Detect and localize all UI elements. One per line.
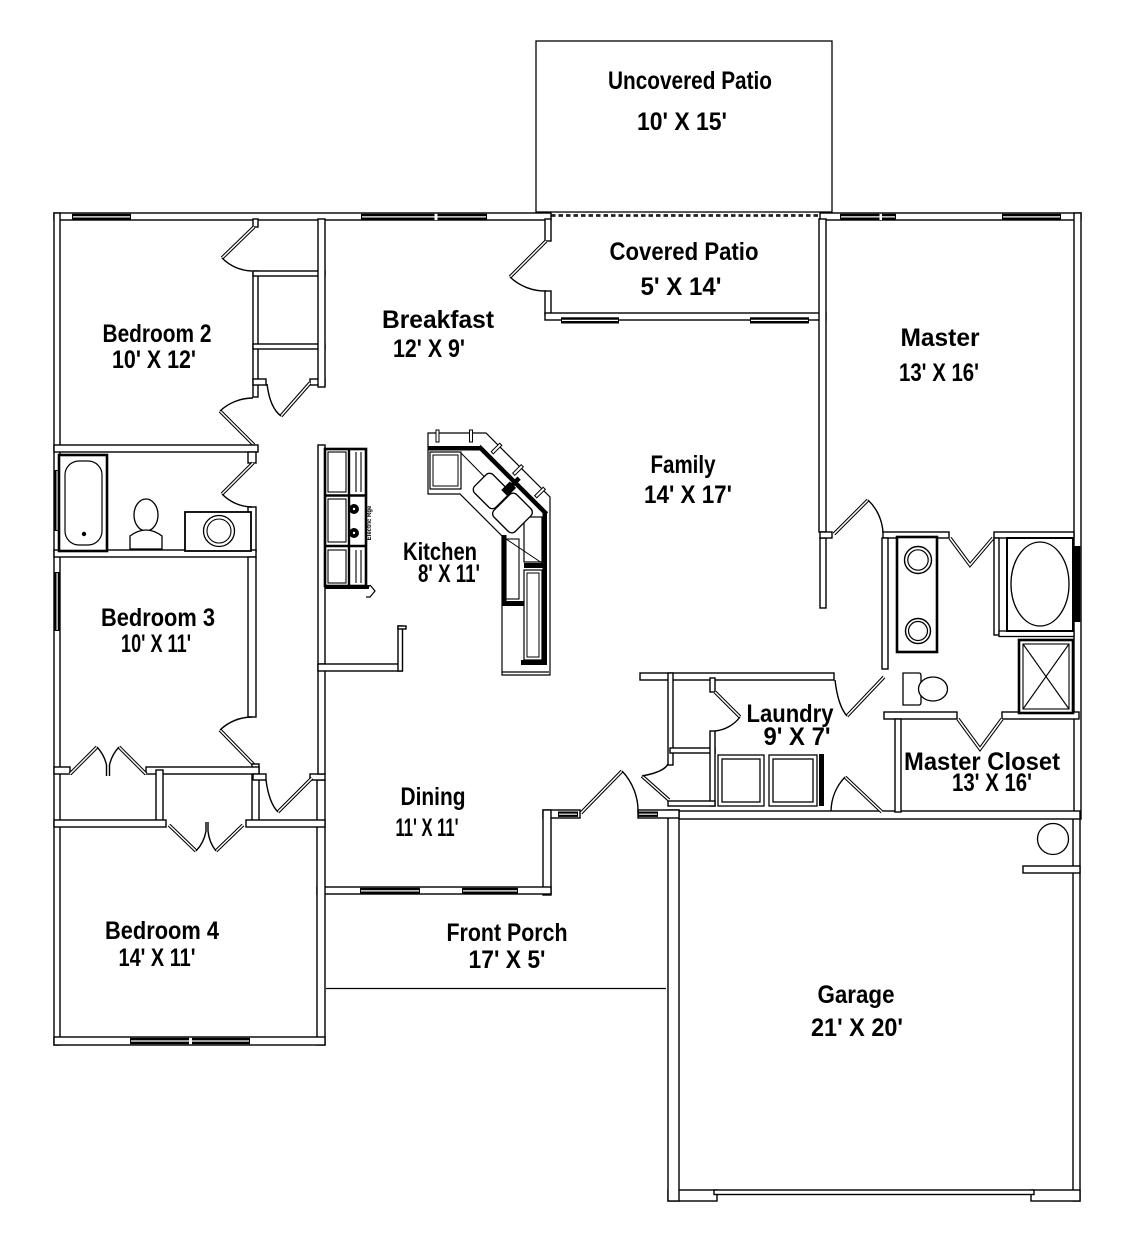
svg-text:Master: Master — [901, 324, 980, 352]
svg-text:Electric Rge: Electric Rge — [367, 505, 373, 540]
svg-text:Dining: Dining — [401, 783, 466, 811]
svg-text:Breakfast: Breakfast — [382, 306, 495, 334]
svg-text:Covered Patio: Covered Patio — [610, 238, 759, 266]
svg-text:9' X 7': 9' X 7' — [764, 723, 831, 751]
svg-text:10' X 12': 10' X 12' — [112, 346, 196, 374]
svg-text:5' X 14': 5' X 14' — [641, 273, 722, 301]
svg-text:8' X 11': 8' X 11' — [418, 560, 480, 588]
svg-text:Garage: Garage — [818, 981, 895, 1009]
svg-text:Family: Family — [651, 451, 716, 479]
svg-text:12' X 9': 12' X 9' — [393, 335, 465, 363]
svg-text:11' X 11': 11' X 11' — [396, 814, 459, 842]
svg-text:Bedroom 3: Bedroom 3 — [101, 604, 215, 632]
svg-text:10' X 11': 10' X 11' — [121, 630, 191, 658]
svg-text:17' X 5': 17' X 5' — [469, 946, 546, 974]
svg-text:13' X 16': 13' X 16' — [952, 769, 1032, 797]
svg-text:Bedroom 4: Bedroom 4 — [105, 917, 219, 945]
svg-text:Front Porch: Front Porch — [447, 919, 568, 947]
svg-text:10' X 15': 10' X 15' — [637, 108, 727, 136]
svg-text:Bedroom 2: Bedroom 2 — [103, 320, 212, 348]
svg-text:21' X 20': 21' X 20' — [811, 1014, 903, 1042]
svg-text:14' X 17': 14' X 17' — [644, 481, 732, 509]
svg-text:14' X 11': 14' X 11' — [119, 944, 196, 972]
svg-text:Uncovered Patio: Uncovered Patio — [608, 67, 772, 95]
svg-text:13' X 16': 13' X 16' — [899, 359, 979, 387]
